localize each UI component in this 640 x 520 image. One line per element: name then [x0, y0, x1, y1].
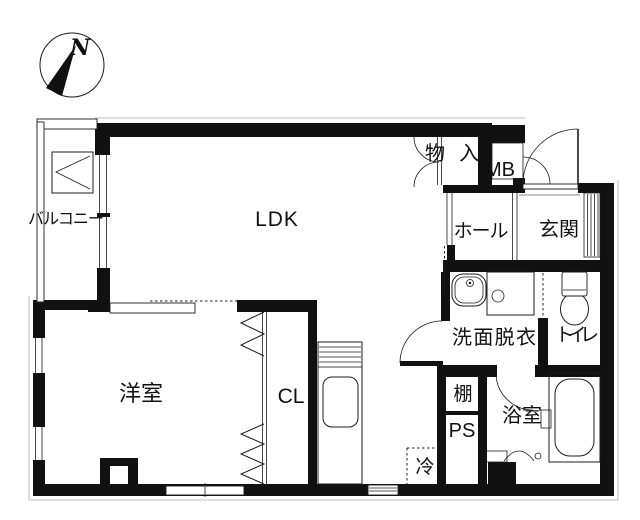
- balcony-rail-top: [37, 119, 97, 129]
- wall: [535, 365, 614, 377]
- label-western-room: 洋室: [119, 381, 163, 406]
- wall: [88, 300, 110, 312]
- toilet-icon: [561, 272, 589, 325]
- wall: [578, 183, 614, 193]
- wall: [446, 411, 478, 415]
- washbasin-icon: [452, 274, 486, 306]
- compass: N: [40, 33, 104, 97]
- kitchen-counter: [318, 342, 362, 484]
- washing-machine-pan-icon: [487, 272, 534, 315]
- wall: [33, 373, 45, 427]
- wall: [538, 318, 548, 365]
- wall: [95, 123, 492, 137]
- kitchen-sink-icon: [323, 377, 358, 427]
- closet-folding-door: [241, 312, 267, 484]
- wall: [441, 365, 497, 377]
- wall: [437, 365, 446, 484]
- floor-plan-svg: N: [0, 0, 640, 520]
- entrance-door: [519, 129, 580, 195]
- wall: [237, 300, 308, 312]
- wall: [33, 484, 614, 496]
- wall: [488, 462, 516, 484]
- floor-plan-page: N: [0, 0, 640, 520]
- label-washroom: 洗面脱衣: [452, 326, 536, 349]
- label-closet: CL: [278, 385, 305, 408]
- wall: [478, 377, 487, 484]
- wall: [441, 272, 450, 321]
- wall: [600, 183, 614, 496]
- west-window-lower: [33, 427, 45, 460]
- bath-counter-icon: [486, 451, 541, 462]
- label-pipe-space: PS: [449, 420, 476, 442]
- wall: [308, 300, 317, 496]
- label-entrance: 玄関: [539, 218, 579, 241]
- western-room-sliding-door: [110, 301, 237, 313]
- entrance-step-line: [513, 193, 518, 260]
- label-balcony: バルコニー: [28, 211, 104, 228]
- slop-sink-icon: [52, 152, 93, 193]
- wall: [492, 125, 525, 143]
- stove-icon: [318, 342, 362, 367]
- wall: [97, 268, 110, 302]
- label-hall: ホール: [454, 221, 509, 242]
- label-ldk: LDK: [255, 208, 299, 231]
- washroom-door: [400, 321, 443, 366]
- pillar-core: [110, 466, 128, 484]
- shoe-cabinet-icon: [584, 193, 600, 257]
- label-toilet: トイレ: [555, 325, 599, 346]
- label-storage: 物入: [425, 142, 479, 165]
- wall: [443, 260, 614, 272]
- wall: [33, 302, 45, 338]
- label-shelf: 棚: [453, 383, 472, 405]
- compass-north-label: N: [69, 35, 91, 61]
- west-window-upper: [33, 338, 45, 373]
- bathtub-icon: [541, 373, 600, 462]
- water-heater-icon: [368, 485, 398, 495]
- label-refrigerator: 冷: [415, 456, 434, 478]
- label-meter-box: MB: [485, 159, 515, 181]
- label-bathroom: 浴室: [502, 404, 542, 427]
